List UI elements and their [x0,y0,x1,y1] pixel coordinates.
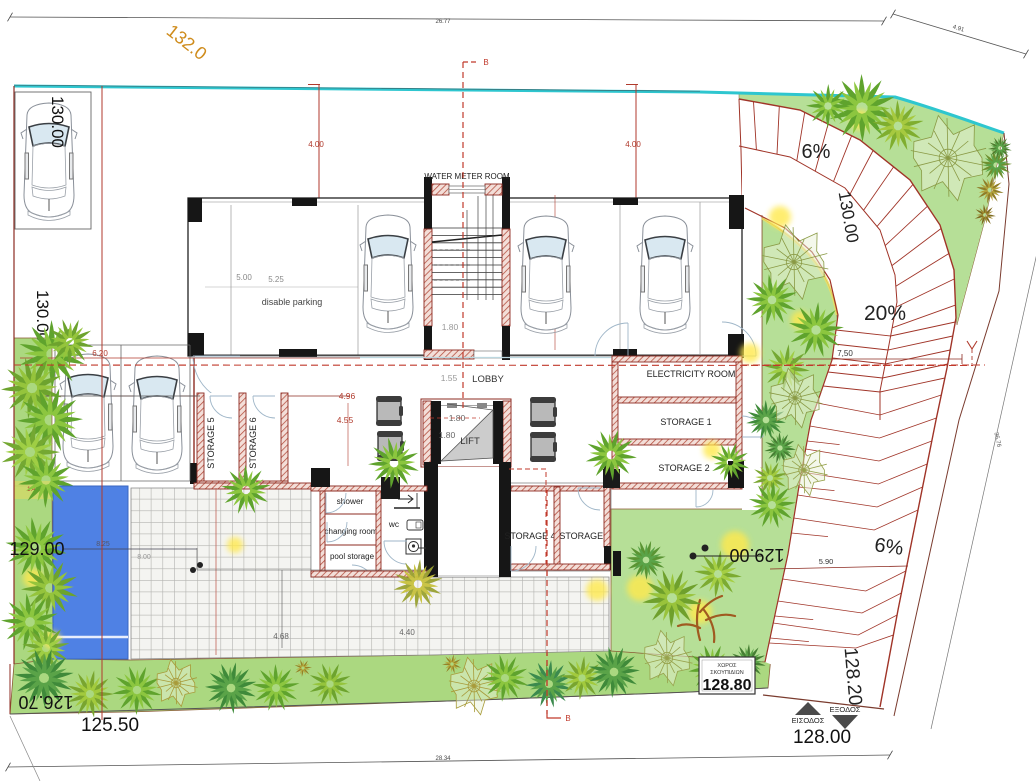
svg-text:STORAGE 2: STORAGE 2 [658,463,709,473]
svg-text:6%: 6% [873,534,905,560]
svg-text:28.34: 28.34 [435,756,451,762]
svg-text:STORAGE 1: STORAGE 1 [660,417,711,427]
svg-text:ELECTRICITY ROOM: ELECTRICITY ROOM [647,369,736,379]
svg-text:4.00: 4.00 [625,140,641,149]
svg-text:6.20: 6.20 [92,349,108,358]
svg-text:4.00: 4.00 [308,140,324,149]
svg-text:LOBBY: LOBBY [472,374,504,385]
svg-text:26.77: 26.77 [435,19,451,25]
svg-text:STORAGE 4: STORAGE 4 [504,531,555,541]
svg-text:128.00: 128.00 [793,727,851,748]
svg-text:1.80: 1.80 [439,430,456,440]
svg-text:20%: 20% [864,302,906,325]
svg-text:B: B [565,714,570,723]
svg-text:7,50: 7,50 [837,349,853,358]
svg-text:ΕΞΟΔΟΣ: ΕΞΟΔΟΣ [830,705,861,714]
svg-text:1.80: 1.80 [442,322,459,332]
svg-text:129.00: 129.00 [9,539,64,559]
svg-text:128.80: 128.80 [703,677,752,694]
svg-text:STORAGE 3: STORAGE 3 [559,531,610,541]
svg-text:pool storage: pool storage [330,552,375,561]
svg-text:5.00: 5.00 [236,273,252,282]
svg-text:126.70: 126.70 [18,692,73,712]
svg-text:130.00: 130.00 [48,96,67,148]
svg-text:4.55: 4.55 [337,415,354,425]
svg-text:ΧΩΡΟΣ: ΧΩΡΟΣ [717,663,737,669]
svg-text:ΣΚΟΥΠΙΔΙΩΝ: ΣΚΟΥΠΙΔΙΩΝ [710,670,743,676]
svg-text:4.96: 4.96 [339,391,356,401]
svg-text:125.50: 125.50 [81,715,139,736]
svg-text:4.68: 4.68 [273,632,289,641]
svg-text:STORAGE 6: STORAGE 6 [248,417,258,468]
svg-text:B: B [483,58,488,67]
svg-text:4.40: 4.40 [399,628,415,637]
svg-text:changing room: changing room [325,527,378,536]
svg-text:8.00: 8.00 [137,554,151,561]
svg-text:ΕΙΣΟΔΟΣ: ΕΙΣΟΔΟΣ [792,716,825,725]
svg-text:1.55: 1.55 [441,373,458,383]
svg-text:WATER METER ROOM: WATER METER ROOM [424,172,510,181]
svg-text:5.25: 5.25 [268,275,284,284]
svg-text:wc: wc [388,519,399,529]
svg-text:shower: shower [337,496,364,506]
svg-text:6%: 6% [802,141,831,163]
svg-text:5.90: 5.90 [819,557,834,566]
svg-text:129.00: 129.00 [729,545,784,565]
svg-text:8.25: 8.25 [96,541,110,548]
svg-text:STORAGE 5: STORAGE 5 [206,417,216,468]
svg-text:disable parking: disable parking [262,297,323,307]
svg-text:LIFT: LIFT [460,436,480,447]
